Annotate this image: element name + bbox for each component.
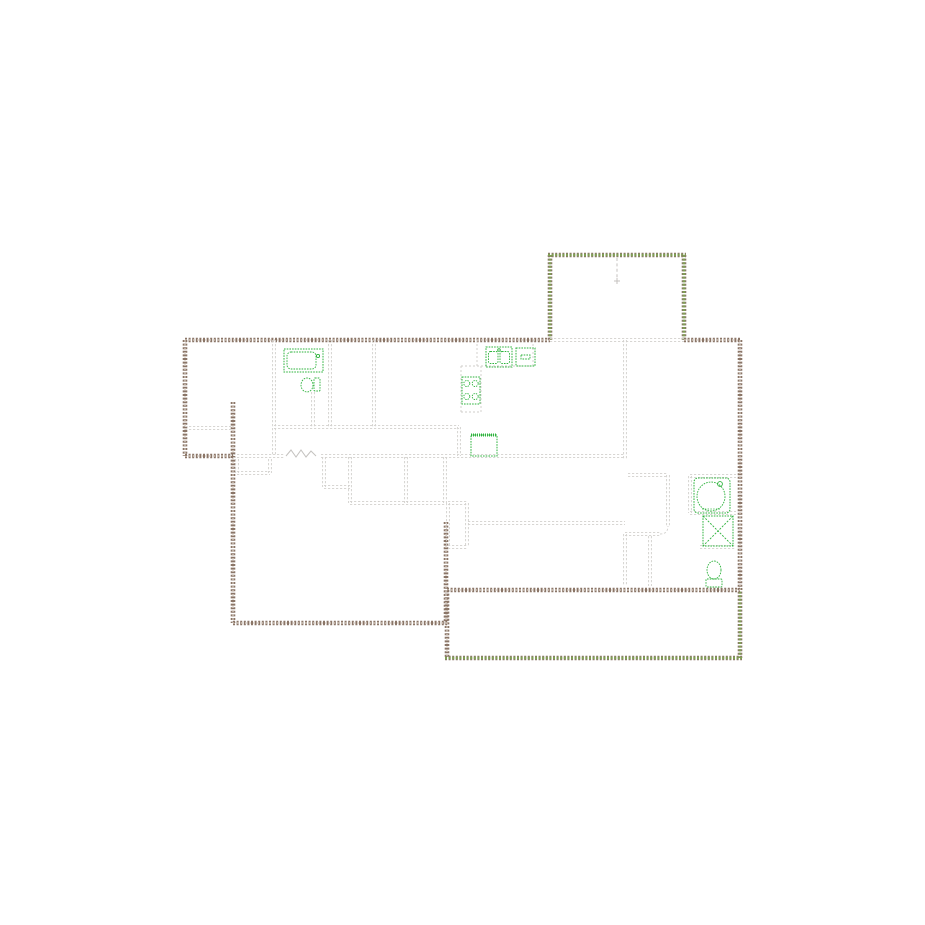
break-line-symbol (285, 450, 320, 461)
floor-plan-page (0, 0, 925, 925)
floor-plan-drawing (0, 0, 925, 925)
